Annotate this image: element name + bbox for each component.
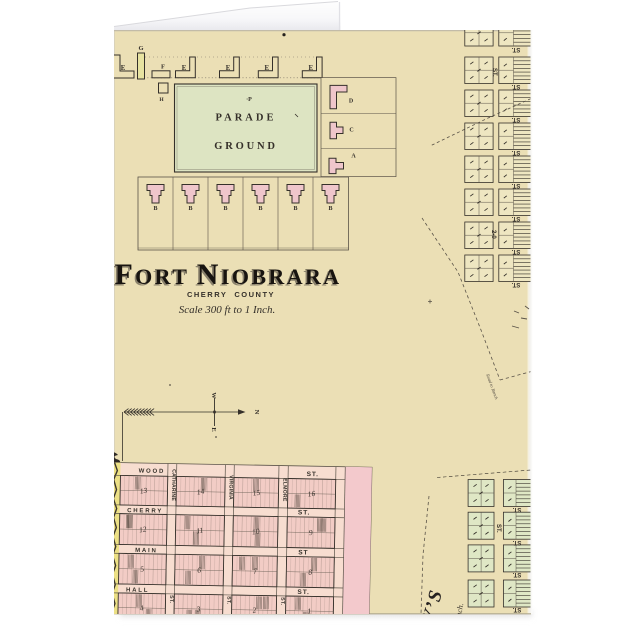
svg-text:F: F xyxy=(161,64,165,71)
svg-text:·P: ·P xyxy=(246,97,252,103)
svg-text:CHERRY: CHERRY xyxy=(127,508,163,515)
svg-text:B: B xyxy=(223,206,227,212)
svg-text:ST.: ST. xyxy=(511,149,520,155)
svg-text:2-0: 2-0 xyxy=(490,230,496,239)
svg-text:ST.: ST. xyxy=(511,83,520,89)
svg-text:E: E xyxy=(210,427,217,431)
svg-text:11: 11 xyxy=(196,526,204,536)
svg-text:ST.: ST. xyxy=(168,595,174,604)
svg-text:CHERRY COUNTY: CHERRY COUNTY xyxy=(187,290,275,299)
svg-text:HALL: HALL xyxy=(126,588,149,594)
svg-text:N: N xyxy=(253,410,260,415)
svg-text:B: B xyxy=(328,206,332,212)
svg-text:ST.: ST. xyxy=(511,182,520,188)
svg-text:B: B xyxy=(258,206,262,212)
svg-text:E: E xyxy=(265,65,270,72)
svg-text:ST.: ST. xyxy=(511,116,520,122)
svg-text:ELMORE: ELMORE xyxy=(281,478,287,502)
svg-text:ST.: ST. xyxy=(512,539,521,545)
svg-text:ST.: ST. xyxy=(512,506,521,512)
svg-text:B: B xyxy=(153,206,157,212)
svg-text:G: G xyxy=(138,45,143,52)
svg-text:ST.: ST. xyxy=(511,46,520,52)
svg-text:ST.: ST. xyxy=(512,606,521,612)
svg-text:MAIN: MAIN xyxy=(135,548,158,554)
svg-text:ST.: ST. xyxy=(511,215,520,221)
svg-text:D: D xyxy=(349,99,354,105)
svg-text:E: E xyxy=(182,65,187,72)
svg-text:E: E xyxy=(309,65,314,72)
svg-text:ST.: ST. xyxy=(511,281,520,287)
svg-text:WOOD: WOOD xyxy=(139,468,166,474)
svg-text:Scale 300 ft to 1 Inch.: Scale 300 ft to 1 Inch. xyxy=(179,304,276,316)
svg-text:W: W xyxy=(210,392,217,399)
svg-text:ST.: ST. xyxy=(495,524,501,533)
svg-text:ST.: ST. xyxy=(279,597,285,606)
svg-text:ST.: ST. xyxy=(297,589,310,596)
svg-text:ST.: ST. xyxy=(307,471,320,478)
svg-text:ST.: ST. xyxy=(512,571,521,577)
svg-text:ST.: ST. xyxy=(491,68,497,77)
svg-text:ST.: ST. xyxy=(298,509,311,516)
svg-text:H: H xyxy=(159,97,164,103)
svg-text:C: C xyxy=(349,128,353,134)
svg-text:E: E xyxy=(121,65,126,72)
svg-text:ST.: ST. xyxy=(511,248,520,254)
svg-text:A: A xyxy=(351,154,356,160)
svg-text:B: B xyxy=(293,206,297,212)
svg-text:VIRGINIA: VIRGINIA xyxy=(227,475,233,500)
svg-text:ST: ST xyxy=(298,549,308,556)
svg-text:PARADE: PARADE xyxy=(216,113,277,124)
svg-text:CATHARINE: CATHARINE xyxy=(170,469,177,501)
svg-text:B: B xyxy=(188,206,192,212)
svg-text:E: E xyxy=(226,65,231,72)
svg-text:ST.: ST. xyxy=(225,596,231,605)
svg-text:GROUND: GROUND xyxy=(214,141,277,152)
